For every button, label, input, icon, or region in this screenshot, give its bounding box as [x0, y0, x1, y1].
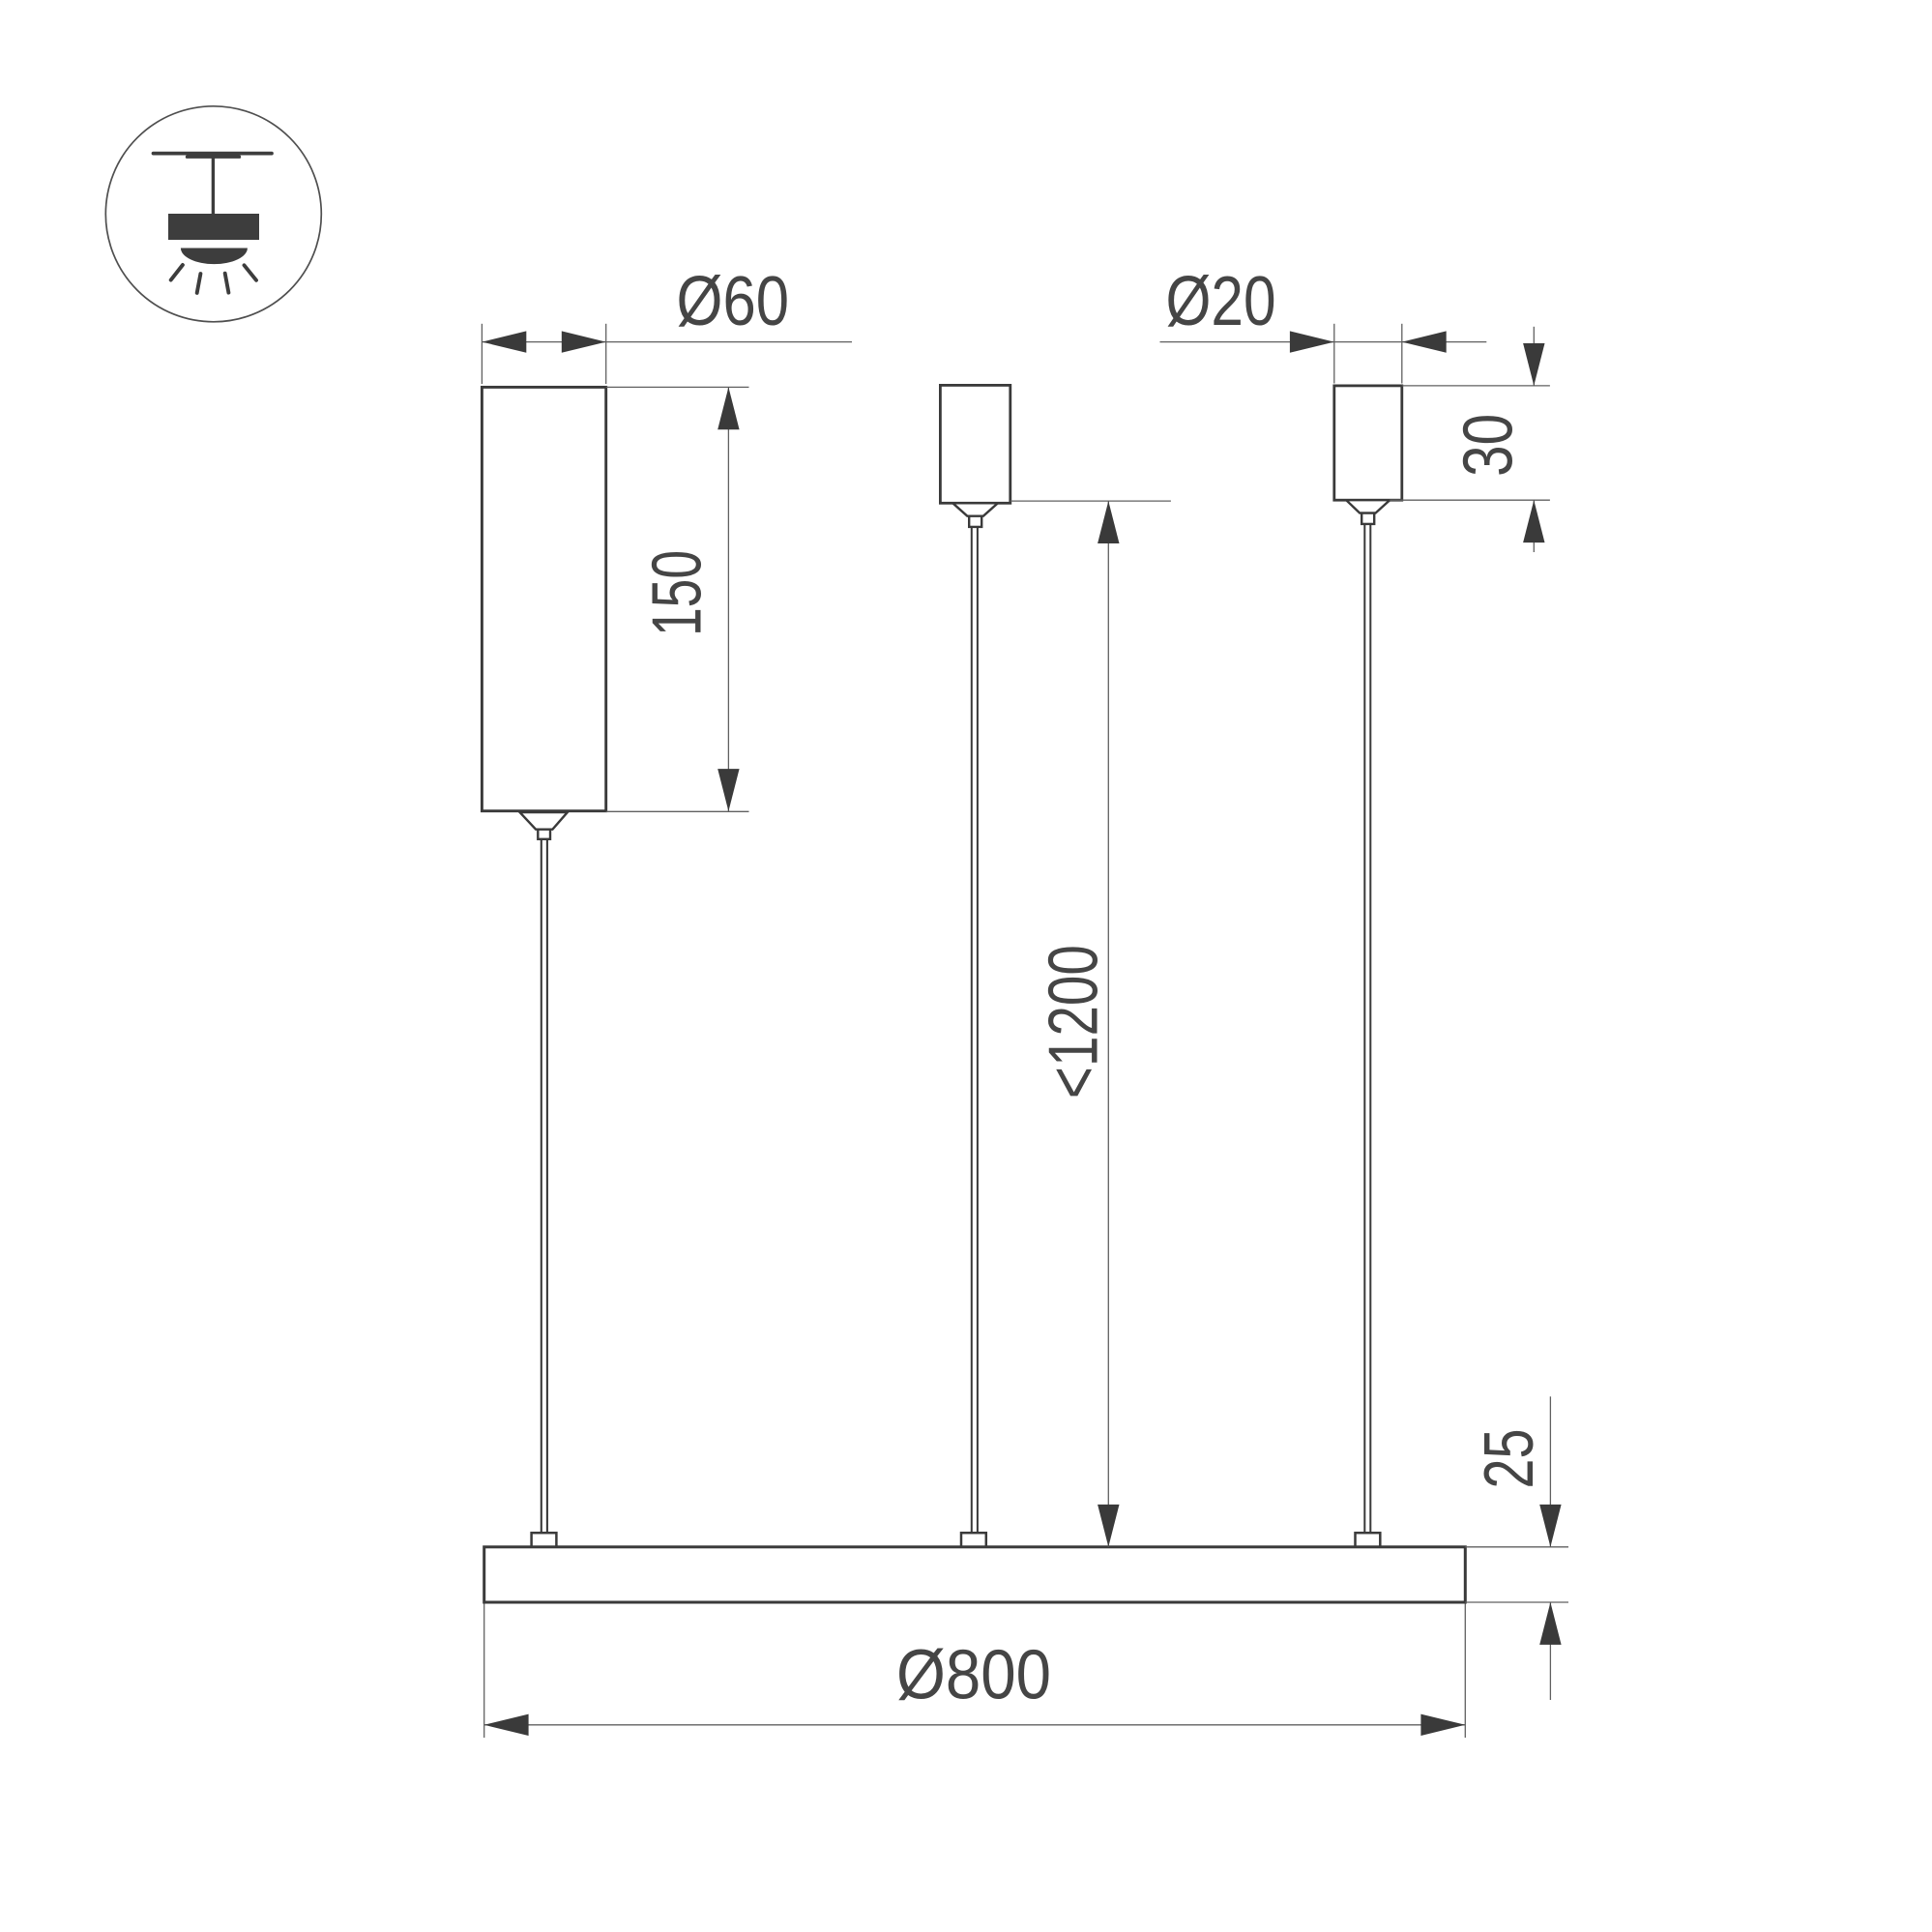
svg-text:Ø20: Ø20 [1166, 262, 1276, 340]
svg-text:Ø60: Ø60 [677, 262, 790, 340]
svg-text:25: 25 [1470, 1429, 1548, 1489]
svg-text:30: 30 [1449, 414, 1527, 477]
svg-text:Ø800: Ø800 [896, 1635, 1051, 1713]
svg-text:<1200: <1200 [1035, 945, 1113, 1098]
svg-text:150: 150 [638, 550, 717, 636]
